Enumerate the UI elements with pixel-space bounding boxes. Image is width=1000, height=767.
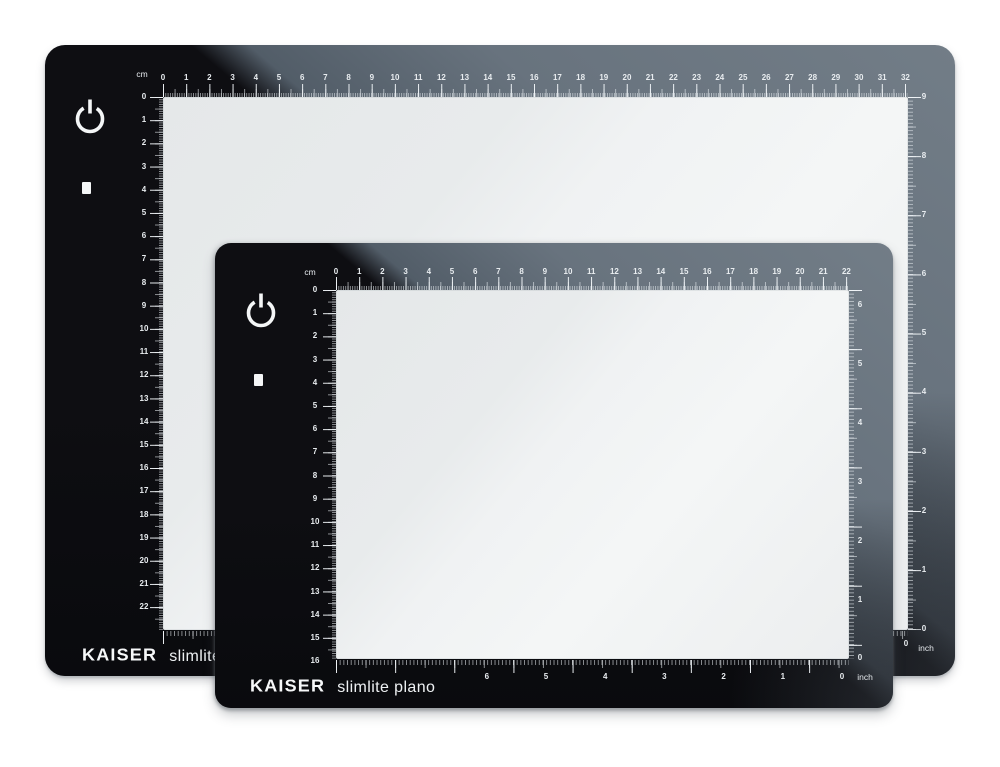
ruler-label: 9 xyxy=(543,268,547,276)
ruler-label: 7 xyxy=(142,255,146,263)
indicator-square xyxy=(82,182,91,194)
ruler-label: 5 xyxy=(544,673,548,681)
ruler-label: 0 xyxy=(161,74,165,82)
ruler-label: 2 xyxy=(721,673,725,681)
ruler-label: 12 xyxy=(610,268,619,276)
ruler-label: 4 xyxy=(142,186,146,194)
ruler-label: 4 xyxy=(603,673,607,681)
ruler-label: 14 xyxy=(140,418,149,426)
ruler-label: 7 xyxy=(922,211,926,219)
ruler-label: 25 xyxy=(739,74,748,82)
ruler-label: 14 xyxy=(311,611,320,619)
left-cm-ticks xyxy=(150,97,163,630)
ruler-label: 32 xyxy=(901,74,910,82)
power-button[interactable] xyxy=(73,96,107,134)
ruler-label: 15 xyxy=(140,441,149,449)
brand-name: KAISER xyxy=(250,677,325,697)
ruler-label: 1 xyxy=(142,116,146,124)
power-icon xyxy=(73,96,107,134)
ruler-label: 22 xyxy=(140,603,149,611)
ruler-label: 2 xyxy=(922,507,926,515)
ruler-label: 12 xyxy=(311,564,320,572)
indicator-square xyxy=(254,374,263,386)
ruler-label: 16 xyxy=(311,657,320,665)
ruler-label: 21 xyxy=(819,268,828,276)
ruler-label: 30 xyxy=(855,74,864,82)
ruler-label: 31 xyxy=(878,74,887,82)
ruler-label: 16 xyxy=(703,268,712,276)
inch-unit-label: inch xyxy=(857,673,873,682)
ruler-label: 17 xyxy=(553,74,562,82)
ruler-label: 22 xyxy=(669,74,678,82)
ruler-label: 6 xyxy=(473,268,477,276)
ruler-label: 16 xyxy=(140,464,149,472)
ruler-label: 5 xyxy=(858,360,862,368)
ruler-label: 28 xyxy=(808,74,817,82)
ruler-label: 18 xyxy=(576,74,585,82)
ruler-label: 2 xyxy=(207,74,211,82)
ruler-label: 1 xyxy=(858,596,862,604)
ruler-label: 14 xyxy=(483,74,492,82)
ruler-label: 3 xyxy=(858,478,862,486)
ruler-label: 10 xyxy=(391,74,400,82)
ruler-label: 21 xyxy=(646,74,655,82)
ruler-label: 1 xyxy=(184,74,188,82)
ruler-label: 10 xyxy=(140,325,149,333)
ruler-label: 24 xyxy=(715,74,724,82)
ruler-label: 5 xyxy=(142,209,146,217)
ruler-label: 20 xyxy=(140,557,149,565)
ruler-label: 19 xyxy=(140,534,149,542)
ruler-label: 0 xyxy=(858,654,862,662)
ruler-label: 9 xyxy=(142,302,146,310)
ruler-label: 14 xyxy=(656,268,665,276)
ruler-label: 3 xyxy=(142,163,146,171)
ruler-label: 3 xyxy=(922,448,926,456)
ruler-label: 21 xyxy=(140,580,149,588)
ruler-label: 11 xyxy=(587,268,595,276)
ruler-label: 3 xyxy=(403,268,407,276)
ruler-label: 7 xyxy=(323,74,327,82)
ruler-label: 0 xyxy=(334,268,338,276)
ruler-label: 2 xyxy=(313,332,317,340)
top-cm-ticks xyxy=(336,277,849,290)
ruler-label: 8 xyxy=(519,268,523,276)
ruler-label: 5 xyxy=(313,402,317,410)
ruler-label: 29 xyxy=(831,74,840,82)
ruler-label: 10 xyxy=(564,268,573,276)
lightbox-small: 012345678910111213141516171819202122 012… xyxy=(215,243,893,708)
power-button[interactable] xyxy=(244,290,278,328)
ruler-label: 19 xyxy=(599,74,608,82)
ruler-label: 2 xyxy=(142,139,146,147)
ruler-label: 13 xyxy=(633,268,642,276)
ruler-label: 6 xyxy=(313,425,317,433)
ruler-label: 4 xyxy=(254,74,258,82)
ruler-label: 12 xyxy=(437,74,446,82)
ruler-label: 7 xyxy=(496,268,500,276)
ruler-label: 26 xyxy=(762,74,771,82)
ruler-label: 4 xyxy=(313,379,317,387)
ruler-label: 20 xyxy=(623,74,632,82)
product-photo: 0123456789101112131415161718192021222324… xyxy=(0,0,1000,767)
ruler-label: 17 xyxy=(140,487,149,495)
ruler-label: 20 xyxy=(796,268,805,276)
bottom-inch-ticks xyxy=(336,660,849,673)
light-surface xyxy=(336,290,849,659)
ruler-label: 6 xyxy=(858,301,862,309)
brand-name: KAISER xyxy=(82,646,157,666)
ruler-label: 22 xyxy=(842,268,851,276)
ruler-label: 18 xyxy=(749,268,758,276)
top-cm-ticks xyxy=(163,84,908,97)
ruler-label: 6 xyxy=(922,270,926,278)
ruler-label: 6 xyxy=(485,673,489,681)
ruler-label: 5 xyxy=(277,74,281,82)
ruler-label: 8 xyxy=(313,472,317,480)
ruler-label: 13 xyxy=(311,588,320,596)
ruler-label: 7 xyxy=(313,448,317,456)
ruler-label: 17 xyxy=(726,268,735,276)
ruler-label: 0 xyxy=(142,93,146,101)
ruler-label: 4 xyxy=(427,268,431,276)
ruler-label: 0 xyxy=(904,640,908,648)
ruler-label: 3 xyxy=(230,74,234,82)
cm-unit-label: cm xyxy=(136,70,147,79)
ruler-label: 11 xyxy=(414,74,422,82)
power-icon xyxy=(244,290,278,328)
ruler-label: 8 xyxy=(142,279,146,287)
ruler-label: 0 xyxy=(922,625,926,633)
ruler-label: 27 xyxy=(785,74,794,82)
ruler-label: 19 xyxy=(772,268,781,276)
ruler-label: 1 xyxy=(313,309,317,317)
brand-logo: KAISER slimlite plano xyxy=(250,676,435,697)
ruler-label: 6 xyxy=(300,74,304,82)
ruler-label: 9 xyxy=(922,93,926,101)
ruler-label: 1 xyxy=(922,566,926,574)
right-inch-ticks xyxy=(849,290,862,659)
ruler-label: 9 xyxy=(313,495,317,503)
ruler-label: 4 xyxy=(922,388,926,396)
right-inch-ticks xyxy=(908,97,921,630)
ruler-label: 1 xyxy=(357,268,361,276)
ruler-label: 8 xyxy=(346,74,350,82)
ruler-label: 15 xyxy=(680,268,689,276)
ruler-label: 3 xyxy=(313,356,317,364)
inch-unit-label: inch xyxy=(918,644,934,653)
ruler-label: 13 xyxy=(140,395,149,403)
cm-unit-label: cm xyxy=(304,268,315,277)
ruler-label: 1 xyxy=(781,673,785,681)
ruler-label: 12 xyxy=(140,371,149,379)
ruler-label: 16 xyxy=(530,74,539,82)
ruler-label: 10 xyxy=(311,518,320,526)
ruler-label: 6 xyxy=(142,232,146,240)
ruler-label: 18 xyxy=(140,511,149,519)
ruler-label: 13 xyxy=(460,74,469,82)
ruler-label: 9 xyxy=(370,74,374,82)
ruler-label: 0 xyxy=(840,673,844,681)
ruler-label: 2 xyxy=(858,537,862,545)
ruler-label: 3 xyxy=(662,673,666,681)
ruler-label: 8 xyxy=(922,152,926,160)
ruler-label: 2 xyxy=(380,268,384,276)
left-cm-ticks xyxy=(323,290,336,659)
ruler-label: 4 xyxy=(858,419,862,427)
model-name: slimlite plano xyxy=(337,679,435,697)
ruler-label: 11 xyxy=(311,541,319,549)
ruler-label: 15 xyxy=(311,634,320,642)
ruler-label: 15 xyxy=(507,74,516,82)
ruler-label: 23 xyxy=(692,74,701,82)
ruler-label: 5 xyxy=(922,329,926,337)
ruler-label: 0 xyxy=(313,286,317,294)
ruler-label: 5 xyxy=(450,268,454,276)
ruler-label: 11 xyxy=(140,348,148,356)
